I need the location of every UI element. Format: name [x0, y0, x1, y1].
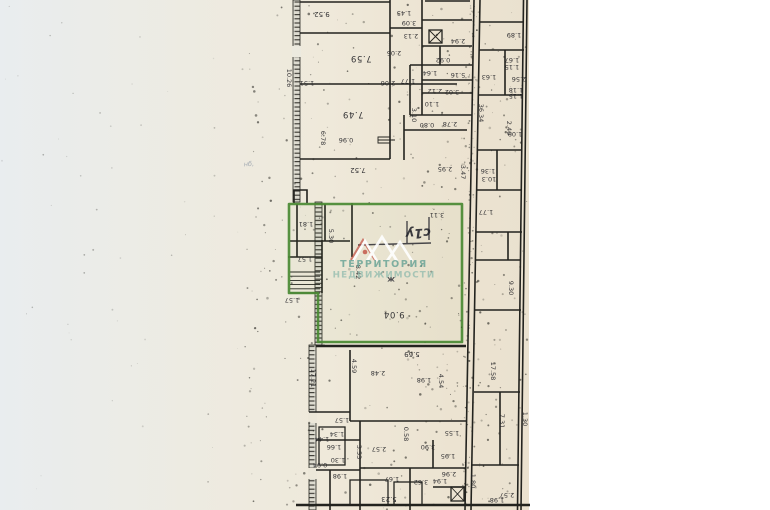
- noise-dot: [460, 435, 461, 436]
- noise-dot: [356, 157, 358, 159]
- noise-dot: [369, 202, 370, 203]
- noise-dot: [441, 186, 443, 188]
- noise-dot: [142, 425, 144, 427]
- noise-dot: [214, 215, 215, 216]
- noise-dot: [440, 8, 442, 10]
- noise-dot: [472, 160, 474, 162]
- noise-dot: [441, 229, 442, 230]
- noise-dot: [398, 101, 400, 103]
- dimension-label: 1.67: [385, 475, 399, 483]
- noise-dot: [504, 495, 505, 496]
- noise-dot: [335, 328, 336, 329]
- noise-dot: [441, 219, 442, 220]
- noise-dot: [462, 464, 464, 466]
- noise-dot: [427, 170, 429, 172]
- noise-dot: [334, 150, 335, 151]
- noise-dot: [389, 318, 391, 320]
- dimension-label: 0.80: [420, 121, 434, 129]
- noise-dot: [470, 92, 472, 94]
- noise-dot: [474, 6, 475, 7]
- noise-dot: [524, 419, 526, 421]
- noise-dot: [333, 196, 335, 198]
- noise-dot: [510, 86, 511, 87]
- noise-dot: [473, 446, 475, 448]
- noise-dot: [334, 176, 336, 178]
- noise-dot: [473, 20, 475, 22]
- noise-dot: [458, 313, 459, 314]
- dimension-label: 1.89: [507, 31, 521, 39]
- noise-dot: [410, 230, 412, 232]
- noise-dot: [403, 177, 405, 179]
- noise-dot: [310, 74, 311, 75]
- noise-dot: [467, 424, 468, 425]
- noise-dot: [283, 118, 285, 120]
- noise-dot: [439, 164, 441, 166]
- noise-dot: [253, 90, 256, 93]
- noise-dot: [417, 429, 419, 431]
- noise-dot: [469, 14, 470, 15]
- dimension-label: 1.77: [401, 77, 415, 85]
- noise-dot: [399, 122, 401, 124]
- noise-dot: [255, 216, 257, 218]
- noise-dot: [266, 297, 269, 300]
- noise-dot: [441, 114, 443, 116]
- noise-dot: [514, 297, 516, 299]
- noise-dot: [519, 266, 521, 268]
- noise-dot: [432, 208, 433, 209]
- noise-dot: [472, 33, 474, 35]
- noise-dot: [286, 504, 288, 506]
- noise-dot: [469, 218, 470, 219]
- dimension-label: 2.56: [512, 75, 526, 83]
- dimension-label: 0.96: [339, 136, 353, 144]
- noise-dot: [519, 407, 520, 408]
- dimension-label: 3.02: [445, 88, 459, 96]
- dimension-label: 2.13: [404, 32, 418, 40]
- noise-dot: [260, 440, 261, 441]
- noise-dot: [144, 339, 146, 341]
- noise-dot: [214, 127, 216, 129]
- noise-dot: [412, 157, 414, 159]
- noise-dot: [419, 369, 421, 371]
- noise-dot: [171, 255, 173, 257]
- noise-dot: [262, 136, 264, 138]
- noise-dot: [439, 421, 440, 422]
- noise-dot: [470, 158, 472, 160]
- noise-dot: [330, 309, 332, 311]
- noise-dot: [487, 439, 489, 441]
- noise-dot: [426, 449, 428, 451]
- noise-dot: [248, 426, 250, 428]
- noise-dot: [327, 32, 328, 33]
- dimension-label: 6.78: [319, 131, 327, 145]
- noise-dot: [419, 310, 421, 312]
- noise-dot: [473, 197, 474, 198]
- dimension-label: 1.34: [330, 430, 344, 438]
- noise-dot: [249, 390, 251, 392]
- noise-dot: [381, 187, 382, 188]
- noise-dot: [393, 136, 394, 137]
- noise-dot: [253, 500, 255, 502]
- noise-dot: [308, 395, 310, 397]
- noise-dot: [291, 276, 293, 278]
- noise-dot: [349, 314, 351, 316]
- dimension-label: 1.64: [423, 69, 437, 77]
- dimension-label: 10.26: [285, 69, 293, 88]
- noise-dot: [436, 34, 438, 36]
- noise-dot: [479, 466, 480, 467]
- noise-dot: [304, 228, 306, 230]
- noise-dot: [437, 405, 439, 407]
- noise-dot: [460, 320, 462, 322]
- noise-dot: [502, 497, 504, 499]
- noise-dot: [404, 215, 406, 217]
- noise-dot: [443, 354, 444, 355]
- noise-dot: [493, 362, 495, 364]
- noise-dot: [505, 131, 507, 133]
- noise-dot: [111, 167, 113, 169]
- noise-dot: [407, 350, 409, 352]
- noise-dot: [389, 226, 391, 228]
- noise-dot: [251, 474, 252, 475]
- noise-dot: [465, 462, 467, 464]
- noise-dot: [349, 98, 351, 100]
- noise-dot: [447, 73, 448, 74]
- noise-dot: [463, 356, 464, 357]
- noise-dot: [410, 85, 411, 86]
- noise-dot: [466, 335, 468, 337]
- noise-dot: [383, 451, 384, 452]
- noise-dot: [411, 352, 413, 354]
- noise-dot: [503, 56, 505, 58]
- noise-dot: [489, 59, 491, 61]
- noise-dot: [398, 289, 400, 291]
- dimension-label: 1.55: [445, 429, 459, 437]
- noise-dot: [509, 482, 511, 484]
- noise-dot: [257, 331, 258, 332]
- noise-dot: [475, 343, 476, 344]
- noise-dot: [294, 182, 296, 184]
- dimension-label: 10.3: [482, 175, 496, 183]
- dimension-label: 9.52: [314, 10, 330, 18]
- noise-dot: [397, 13, 399, 15]
- noise-dot: [519, 379, 521, 381]
- noise-dot: [481, 251, 482, 252]
- dimension-label: 1.15: [509, 92, 523, 100]
- noise-dot: [265, 232, 266, 233]
- noise-dot: [504, 164, 505, 165]
- noise-dot: [407, 91, 408, 92]
- noise-dot: [412, 357, 414, 359]
- dimension-label: 7.31: [498, 414, 506, 428]
- noise-dot: [255, 114, 258, 117]
- noise-dot: [473, 248, 474, 249]
- noise-dot: [213, 58, 214, 59]
- noise-dot: [464, 495, 465, 496]
- noise-dot: [430, 102, 431, 103]
- noise-dot: [496, 233, 497, 234]
- noise-dot: [394, 425, 395, 426]
- noise-dot: [467, 158, 468, 159]
- noise-dot: [244, 346, 245, 347]
- noise-dot: [469, 387, 471, 389]
- dimension-label: 1.36: [481, 167, 495, 175]
- noise-dot: [257, 121, 259, 123]
- watermark-line2: НЕДВИЖИМОСТИ: [333, 271, 436, 281]
- noise-dot: [58, 139, 59, 140]
- noise-dot: [237, 232, 238, 233]
- noise-dot: [502, 488, 503, 489]
- noise-dot: [465, 407, 466, 408]
- noise-dot: [474, 76, 476, 78]
- noise-dot: [430, 327, 431, 328]
- noise-dot: [260, 460, 262, 462]
- noise-dot: [448, 454, 450, 456]
- noise-dot: [417, 107, 419, 109]
- noise-dot: [284, 95, 285, 96]
- dimension-label: 9.30: [507, 281, 515, 295]
- noise-dot: [432, 15, 433, 16]
- noise-dot: [322, 50, 323, 51]
- noise-dot: [476, 16, 477, 17]
- noise-dot: [40, 475, 41, 476]
- noise-dot: [463, 470, 465, 472]
- noise-dot: [461, 18, 463, 20]
- noise-dot: [380, 226, 381, 227]
- noise-dot: [263, 224, 265, 226]
- noise-dot: [253, 368, 255, 370]
- dimension-label: 1.10: [425, 100, 439, 108]
- noise-dot: [375, 168, 376, 169]
- noise-dot: [447, 141, 449, 143]
- noise-dot: [260, 479, 261, 480]
- noise-dot: [268, 177, 270, 179]
- noise-dot: [404, 497, 406, 499]
- noise-dot: [390, 35, 393, 38]
- noise-dot: [466, 311, 468, 313]
- noise-dot: [242, 68, 244, 70]
- noise-dot: [112, 400, 113, 401]
- noise-dot: [412, 244, 414, 246]
- noise-dot: [270, 200, 272, 202]
- noise-dot: [434, 92, 436, 94]
- noise-dot: [298, 298, 301, 301]
- noise-dot: [412, 252, 413, 253]
- noise-dot: [468, 147, 470, 149]
- noise-dot: [368, 83, 369, 84]
- noise-dot: [499, 139, 500, 140]
- noise-dot: [61, 22, 62, 23]
- dimension-label: 1.80: [469, 474, 477, 488]
- noise-dot: [409, 115, 411, 117]
- noise-dot: [249, 53, 250, 54]
- noise-dot: [388, 107, 390, 109]
- noise-dot: [467, 227, 469, 229]
- noise-dot: [253, 151, 254, 152]
- noise-dot: [406, 317, 409, 320]
- noise-dot: [469, 191, 470, 192]
- noise-dot: [478, 86, 480, 88]
- noise-dot: [478, 385, 480, 387]
- dimension-label: 1.57: [335, 416, 349, 424]
- noise-dot: [269, 270, 271, 272]
- noise-dot: [469, 162, 472, 165]
- noise-dot: [1, 160, 3, 162]
- noise-dot: [330, 210, 332, 212]
- noise-dot: [321, 428, 323, 430]
- noise-dot: [431, 388, 433, 390]
- noise-dot: [502, 293, 504, 295]
- dimension-label: 2.94: [451, 37, 465, 45]
- noise-dot: [448, 199, 449, 200]
- noise-dot: [443, 38, 444, 39]
- noise-dot: [326, 278, 328, 280]
- dimension-label: 3.47: [459, 165, 467, 179]
- noise-dot: [468, 321, 469, 322]
- dimension-label: 2.96: [442, 470, 456, 478]
- dimension-label: 3.11: [430, 211, 444, 219]
- dimension-label: 1.30: [331, 456, 345, 464]
- noise-dot: [342, 210, 344, 212]
- noise-dot: [252, 291, 253, 292]
- noise-dot: [347, 458, 348, 459]
- noise-dot: [312, 158, 314, 160]
- dimension-label: 1.66: [327, 443, 341, 451]
- dimension-label: 1.45: [397, 9, 411, 17]
- noise-dot: [464, 294, 466, 296]
- noise-dot: [394, 293, 396, 295]
- noise-dot: [482, 499, 483, 500]
- noise-dot: [345, 23, 346, 24]
- noise-dot: [492, 112, 493, 113]
- noise-dot: [419, 45, 420, 46]
- noise-dot: [446, 388, 447, 389]
- noise-dot: [468, 360, 470, 362]
- noise-dot: [450, 394, 451, 395]
- noise-dot: [335, 355, 336, 356]
- dimension-label: 17.58: [489, 362, 497, 381]
- noise-dot: [463, 177, 464, 178]
- noise-dot: [489, 127, 492, 130]
- noise-dot: [392, 139, 393, 140]
- noise-dot: [313, 430, 314, 431]
- dimension-label: 3.53: [355, 445, 363, 459]
- noise-dot: [512, 493, 513, 494]
- noise-dot: [362, 193, 364, 195]
- noise-dot: [256, 299, 258, 301]
- dimension-label: 3.10: [410, 108, 418, 122]
- noise-dot: [51, 205, 52, 206]
- noise-dot: [408, 315, 410, 317]
- noise-dot: [295, 484, 297, 486]
- noise-dot: [514, 151, 516, 153]
- noise-dot: [494, 284, 495, 285]
- noise-dot: [286, 139, 288, 141]
- noise-dot: [411, 377, 413, 379]
- dimension-label: 36.34: [477, 104, 485, 123]
- noise-dot: [467, 467, 469, 469]
- noise-dot: [96, 209, 98, 211]
- noise-dot: [470, 251, 471, 252]
- noise-dot: [476, 281, 478, 283]
- dimension-label: 1.98: [333, 472, 347, 480]
- page-margin: [529, 0, 770, 510]
- noise-dot: [458, 285, 460, 287]
- noise-dot: [516, 424, 518, 426]
- noise-dot: [254, 327, 256, 329]
- noise-dot: [489, 25, 491, 27]
- noise-dot: [353, 47, 355, 49]
- noise-dot: [318, 62, 319, 63]
- noise-dot: [389, 118, 390, 119]
- noise-dot: [469, 457, 470, 458]
- noise-dot: [473, 227, 474, 228]
- noise-dot: [454, 405, 456, 407]
- dimension-label: 3.09: [402, 19, 416, 27]
- noise-dot: [9, 6, 10, 7]
- handwritten-note: с1у: [405, 224, 432, 240]
- noise-dot: [465, 66, 467, 68]
- noise-dot: [454, 390, 456, 392]
- dimension-label: 5.69: [404, 350, 420, 358]
- noise-dot: [485, 43, 486, 44]
- noise-dot: [506, 98, 508, 100]
- noise-dot: [390, 464, 392, 466]
- noise-dot: [295, 473, 296, 474]
- noise-dot: [472, 240, 474, 242]
- noise-dot: [449, 233, 450, 234]
- dimension-label: 4.54: [437, 374, 445, 388]
- noise-dot: [469, 120, 471, 122]
- noise-dot: [393, 460, 395, 462]
- noise-dot: [289, 487, 291, 489]
- noise-dot: [251, 388, 252, 389]
- noise-dot: [369, 484, 372, 487]
- noise-dot: [500, 387, 501, 388]
- noise-dot: [244, 445, 246, 447]
- noise-dot: [407, 4, 409, 6]
- noise-dot: [472, 99, 473, 100]
- noise-dot: [252, 86, 254, 88]
- noise-dot: [491, 150, 492, 151]
- noise-dot: [393, 66, 395, 68]
- noise-dot: [323, 344, 325, 346]
- noise-dot: [479, 463, 480, 464]
- dimension-label: 5.30: [327, 229, 335, 243]
- noise-dot: [463, 386, 464, 387]
- noise-dot: [465, 288, 467, 290]
- watermark-line1: ТЕРРИТОРИЯ: [340, 259, 428, 270]
- noise-dot: [499, 339, 501, 341]
- noise-dot: [423, 181, 426, 184]
- noise-dot: [436, 366, 438, 368]
- noise-dot: [471, 56, 473, 58]
- dimension-label: 1.09: [508, 130, 522, 138]
- noise-dot: [381, 347, 382, 348]
- noise-dot: [462, 485, 464, 487]
- noise-dot: [422, 46, 424, 48]
- noise-dot: [506, 449, 507, 450]
- noise-dot: [247, 287, 249, 289]
- noise-dot: [292, 500, 294, 502]
- dimension-label: 5.23: [381, 495, 397, 503]
- noise-dot: [300, 207, 301, 208]
- noise-dot: [454, 188, 456, 190]
- noise-dot: [493, 339, 495, 341]
- noise-dot: [465, 145, 467, 147]
- noise-dot: [464, 483, 466, 485]
- noise-dot: [469, 264, 470, 265]
